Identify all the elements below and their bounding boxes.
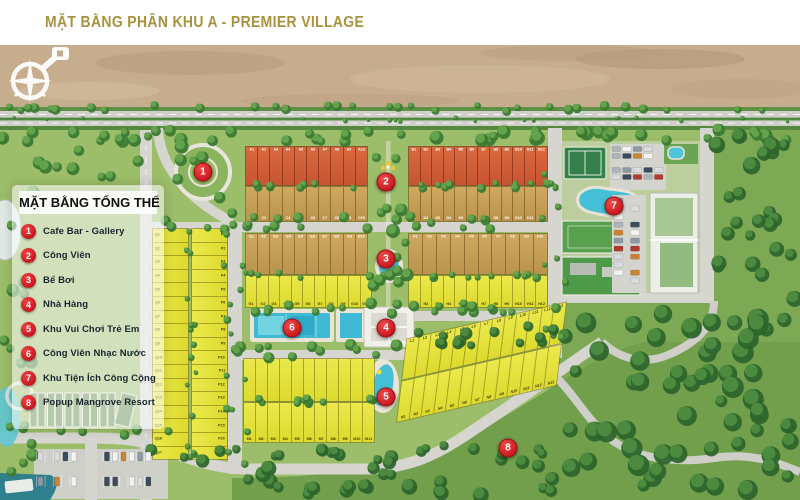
plot-label: B11 [527,148,534,152]
plot-G10[interactable]: G10 [348,276,359,307]
plot-A1[interactable]: A1 [246,147,257,185]
plot-block-K[interactable] [243,358,375,402]
plot-label: N3 [425,409,430,414]
plot-label: G9 [340,302,345,306]
legend-item-number: 3 [21,273,36,288]
plot-label: H11 [527,302,534,306]
plot-lot[interactable] [279,359,291,401]
plot-E6[interactable]: E6 [306,234,318,274]
plot-lot[interactable] [326,359,338,401]
plot-label: M7 [318,437,323,441]
plot-G2[interactable]: G2 [256,276,267,307]
plot-lot[interactable] [291,359,303,401]
plot-label: G6 [306,302,311,306]
plot-label: E2 [262,235,267,239]
legend-item-label: Công Viên [43,250,91,261]
plot-H9[interactable]: H9 [501,276,513,307]
plot-lot[interactable] [303,359,315,401]
plot-E5[interactable]: E5 [294,234,306,274]
plot-G8[interactable]: G8 [325,276,336,307]
plot-D5[interactable]: D5 [454,187,466,221]
plot-label: G4 [283,302,288,306]
plot-label: C4 [286,216,291,220]
plot-B6[interactable]: B6 [466,147,478,185]
plot-label: L7 [484,322,489,327]
plot-label: F9 [525,235,529,239]
plot-F9[interactable]: F9 [519,234,533,274]
plot-label: N12 [535,383,542,388]
plot-A7[interactable]: A7 [318,147,330,185]
plot-label: G2 [260,302,265,306]
legend-item-label: Popup Mangrove Resort [43,397,155,408]
plot-label: E6 [310,235,315,239]
plot-D9[interactable]: D9 [501,187,513,221]
plot-label: L1 [410,339,415,344]
plot-P11[interactable]: P11 [192,364,227,378]
plot-C4[interactable]: C4 [282,187,294,221]
plot-lot[interactable] [314,359,326,401]
plot-label: L11 [532,310,539,315]
plot-D1[interactable]: D1 [409,187,420,221]
plot-label: P16 [218,437,225,441]
title-bar: MẶT BẰNG PHÂN KHU A - PREMIER VILLAGE [0,0,800,45]
plot-label: M2 [259,437,264,441]
plot-C3[interactable]: C3 [269,187,281,221]
plot-H7[interactable]: H7 [477,276,489,307]
plot-P5[interactable]: P5 [192,282,227,296]
plot-P17[interactable]: P17 [192,446,227,460]
plot-H10[interactable]: H10 [512,276,524,307]
plot-label: F8 [511,235,515,239]
plot-H4[interactable]: H4 [443,276,455,307]
legend-item-number: 2 [21,248,36,263]
plot-label: L12 [544,307,551,312]
plot-label: M1 [247,437,252,441]
plot-label: M9 [342,437,347,441]
plot-label: G1 [249,302,254,306]
plot-lot[interactable] [350,359,362,401]
plot-M11[interactable]: M11 [362,403,374,442]
plot-label: M5 [294,437,299,441]
plot-label: N7 [474,398,479,403]
plot-H11[interactable]: H11 [524,276,536,307]
legend-item-1: 1Cafe Bar - Gallery [21,224,157,239]
plot-label: L2 [422,336,427,341]
plot-F8[interactable]: F8 [505,234,519,274]
plot-label: F10 [537,235,543,239]
plot-G1[interactable]: G1 [246,276,256,307]
map-marker-7[interactable]: 7 [605,197,624,216]
plot-label: A2 [261,148,266,152]
plot-A9[interactable]: A9 [343,147,355,185]
plot-M3[interactable]: M3 [267,403,279,442]
plot-lot[interactable] [267,359,279,401]
plot-P14[interactable]: P14 [192,405,227,419]
plot-block-P[interactable]: P1P2P3P4P5P6P7P8P9P10P11P12P13P14P15P16P… [191,228,228,460]
plot-label: H4 [447,302,452,306]
plot-P16[interactable]: P16 [192,432,227,446]
plot-D12[interactable]: D12 [535,187,547,221]
plot-label: D2 [423,216,428,220]
plot-M5[interactable]: M5 [291,403,303,442]
plot-P15[interactable]: P15 [192,418,227,432]
plot-label: N13 [547,381,554,386]
plot-label: H10 [515,302,522,306]
plot-E10[interactable]: E10 [355,234,367,274]
plot-label: B5 [458,148,463,152]
plot-A6[interactable]: A6 [306,147,318,185]
plot-label: D5 [458,216,463,220]
plot-label: L4 [447,330,452,335]
plot-label: C1 [249,216,254,220]
plot-label: L3 [435,333,440,338]
plot-label: P13 [218,397,225,401]
legend-item-number: 1 [21,224,36,239]
plot-C7[interactable]: C7 [318,187,330,221]
plot-F10[interactable]: F10 [533,234,547,274]
legend-item-label: Khu Vui Chơi Trẻ Em [43,324,139,335]
plot-E3[interactable]: E3 [269,234,281,274]
plot-G6[interactable]: G6 [302,276,313,307]
plot-label: P8 [220,329,225,333]
plot-P7[interactable]: P7 [192,310,227,324]
plot-label: N4 [437,406,442,411]
plot-label: B1 [412,148,417,152]
plot-B4[interactable]: B4 [443,147,455,185]
plot-block-H[interactable]: H1H2H3H4H5H6H7H8H9H10H11H12 [408,275,548,308]
plot-C9[interactable]: C9 [343,187,355,221]
legend-item-number: 5 [21,322,36,337]
plot-label: F5 [469,235,473,239]
plot-B5[interactable]: B5 [454,147,466,185]
plot-label: H8 [493,302,498,306]
plot-M7[interactable]: M7 [314,403,326,442]
plot-D10[interactable]: D10 [512,187,524,221]
plot-label: E8 [335,235,340,239]
plot-B12[interactable]: B12 [535,147,547,185]
legend-item-label: Cafe Bar - Gallery [43,226,125,237]
plot-label: N9 [499,392,504,397]
plot-label: B6 [470,148,475,152]
plot-M4[interactable]: M4 [279,403,291,442]
plot-label: E7 [323,235,328,239]
plot-B1[interactable]: B1 [409,147,420,185]
plot-P13[interactable]: P13 [192,391,227,405]
plot-lot[interactable] [255,359,267,401]
plot-label: C8 [335,216,340,220]
plot-label: P4 [220,274,225,278]
plot-label: C5 [298,216,303,220]
plot-label: C7 [322,216,327,220]
plot-label: E5 [298,235,303,239]
plot-label: M3 [271,437,276,441]
plot-label: L13 [557,304,564,309]
plot-G3[interactable]: G3 [268,276,279,307]
plot-Q16[interactable]: Q16 [153,432,188,446]
plot-C2[interactable]: C2 [257,187,269,221]
plot-label: D12 [538,216,545,220]
plot-G9[interactable]: G9 [337,276,348,307]
plot-block-F[interactable]: F1F2F3F4F5F6F7F8F9F10 [408,233,548,275]
plot-label: P1 [220,233,225,237]
map-marker-1[interactable]: 1 [194,163,213,182]
plot-label: H5 [458,302,463,306]
plot-label: Q16 [155,437,162,441]
plot-D3[interactable]: D3 [431,187,443,221]
legend-item-number: 6 [21,346,36,361]
legend-item-label: Nhà Hàng [43,299,88,310]
plot-label: F1 [413,235,417,239]
plot-label: N6 [462,401,467,406]
plot-P8[interactable]: P8 [192,323,227,337]
plot-label: A7 [322,148,327,152]
plot-label: P3 [220,261,225,265]
legend-item-label: Bể Bơi [43,275,75,286]
plot-lot[interactable] [338,359,350,401]
plot-label: P17 [218,451,225,455]
plot-label: L9 [508,316,513,321]
legend-item-6: 6Công Viên Nhạc Nước [21,346,157,361]
plot-label: M8 [330,437,335,441]
plot-label: C9 [347,216,352,220]
plot-C5[interactable]: C5 [294,187,306,221]
plot-label: N8 [487,395,492,400]
plot-label: G7 [317,302,322,306]
legend-item-number: 7 [21,371,36,386]
plot-B10[interactable]: B10 [512,147,524,185]
map-marker-2[interactable]: 2 [377,173,396,192]
plot-label: G8 [329,302,334,306]
legend-item-3: 3Bể Bơi [21,273,157,288]
plot-block-C[interactable]: C1C2C3C4C5C6C7C8C9C10 [245,186,368,222]
plot-label: F7 [497,235,501,239]
plot-label: H12 [538,302,545,306]
plot-P1[interactable]: P1 [192,229,227,242]
plot-label: D3 [435,216,440,220]
masterplan-map: A1A2A3A4A5A6A7A8A9A10 B1B2B3B4B5B6B7B8B9… [0,45,800,500]
plot-label: B4 [447,148,452,152]
plot-D8[interactable]: D8 [489,187,501,221]
plot-block-B[interactable]: B1B2B3B4B5B6B7B8B9B10B11B12 [408,146,548,186]
plot-D11[interactable]: D11 [524,187,536,221]
plot-block-E[interactable]: E1E2E3E4E5E6E7E8E9E10 [245,233,368,275]
plot-P3[interactable]: P3 [192,255,227,269]
plot-F5[interactable]: F5 [464,234,478,274]
plot-label: C3 [274,216,279,220]
legend-items: 1Cafe Bar - Gallery2Công Viên3Bể Bơi4Nhà… [19,224,157,411]
plot-label: M4 [283,437,288,441]
plot-label: E10 [358,235,365,239]
plot-B3[interactable]: B3 [431,147,443,185]
legend-panel: MẶT BẰNG TỔNG THỂ 1Cafe Bar - Gallery2Cô… [12,185,164,429]
plot-B2[interactable]: B2 [420,147,432,185]
plot-lot[interactable] [244,359,255,401]
plot-M6[interactable]: M6 [303,403,315,442]
plot-E4[interactable]: E4 [282,234,294,274]
plot-label: Q17 [155,451,162,455]
plot-C8[interactable]: C8 [330,187,342,221]
plot-label: M10 [353,437,360,441]
plot-P12[interactable]: P12 [192,378,227,392]
plot-label: L5 [459,327,464,332]
plot-A5[interactable]: A5 [294,147,306,185]
plot-H2[interactable]: H2 [420,276,432,307]
plot-label: A4 [286,148,291,152]
plot-M8[interactable]: M8 [326,403,338,442]
plot-label: D4 [447,216,452,220]
plot-label: P14 [218,410,225,414]
plot-label: B9 [505,148,510,152]
plot-label: H7 [481,302,486,306]
plot-label: P11 [219,369,225,373]
plot-label: A3 [274,148,279,152]
page-title: MẶT BẰNG PHÂN KHU A - PREMIER VILLAGE [45,14,364,32]
plot-label: A10 [358,148,365,152]
legend-item-number: 4 [21,297,36,312]
plot-G4[interactable]: G4 [279,276,290,307]
plot-E7[interactable]: E7 [318,234,330,274]
plot-label: C6 [310,216,315,220]
plot-E8[interactable]: E8 [330,234,342,274]
map-marker-5[interactable]: 5 [377,388,396,407]
plot-label: N11 [523,386,530,391]
plot-A10[interactable]: A10 [355,147,367,185]
plot-label: B8 [493,148,498,152]
plot-label: M11 [365,437,372,441]
plot-label: N1 [401,415,406,420]
plot-label: F3 [441,235,445,239]
plot-C10[interactable]: C10 [355,187,367,221]
plot-A8[interactable]: A8 [330,147,342,185]
plot-label: B3 [435,148,440,152]
plot-label: N10 [510,389,517,394]
plot-P2[interactable]: P2 [192,242,227,256]
plot-label: A9 [347,148,352,152]
plot-label: D6 [470,216,475,220]
plot-label: D10 [515,216,522,220]
plot-label: E9 [347,235,352,239]
plot-label: D9 [505,216,510,220]
plot-label: E4 [286,235,291,239]
plot-M2[interactable]: M2 [255,403,267,442]
plot-block-A[interactable]: A1A2A3A4A5A6A7A8A9A10 [245,146,368,186]
plot-P4[interactable]: P4 [192,269,227,283]
plot-M10[interactable]: M10 [350,403,362,442]
plot-A4[interactable]: A4 [282,147,294,185]
plot-label: N5 [450,404,455,409]
plot-P9[interactable]: P9 [192,337,227,351]
plot-block-D[interactable]: D1D2D3D4D5D6D7D8D9D10D11D12 [408,186,548,222]
plot-H6[interactable]: H6 [466,276,478,307]
plot-P6[interactable]: P6 [192,296,227,310]
plot-H5[interactable]: H5 [454,276,466,307]
legend-item-number: 8 [21,395,36,410]
plot-label: A8 [335,148,340,152]
plot-M1[interactable]: M1 [244,403,255,442]
legend-item-7: 7Khu Tiện Ích Công Cộng [21,371,157,386]
plot-label: H6 [470,302,475,306]
plot-label: P15 [218,424,225,428]
plot-F3[interactable]: F3 [436,234,450,274]
plot-C1[interactable]: C1 [246,187,257,221]
plot-B7[interactable]: B7 [477,147,489,185]
plot-Q17[interactable]: Q17 [153,446,188,460]
plot-G5[interactable]: G5 [291,276,302,307]
screenshot-root: MẶT BẰNG PHÂN KHU A - PREMIER VILLAGE [0,0,800,500]
plot-G7[interactable]: G7 [314,276,325,307]
plot-label: C2 [261,216,266,220]
plot-H3[interactable]: H3 [431,276,443,307]
legend-item-label: Khu Tiện Ích Công Cộng [43,373,156,384]
plot-block-M[interactable]: M1M2M3M4M5M6M7M8M9M10M11 [243,402,375,443]
plot-F2[interactable]: F2 [422,234,436,274]
plot-H12[interactable]: H12 [535,276,547,307]
legend-item-5: 5Khu Vui Chơi Trẻ Em [21,322,157,337]
plot-B11[interactable]: B11 [524,147,536,185]
plot-label: H3 [435,302,440,306]
plot-F6[interactable]: F6 [478,234,492,274]
plot-label: F4 [455,235,459,239]
plot-D6[interactable]: D6 [466,187,478,221]
plot-E1[interactable]: E1 [246,234,257,274]
plot-D7[interactable]: D7 [477,187,489,221]
plot-label: D7 [481,216,486,220]
plot-label: L8 [496,319,501,324]
plot-label: B2 [423,148,428,152]
plot-F7[interactable]: F7 [491,234,505,274]
plot-C6[interactable]: C6 [306,187,318,221]
plot-label: G3 [272,302,277,306]
plot-label: P10 [218,356,225,360]
plot-label: H1 [412,302,417,306]
plot-label: G11 [362,302,369,306]
plot-B9[interactable]: B9 [501,147,513,185]
compass-key-icon [0,45,76,107]
map-marker-3[interactable]: 3 [377,250,396,269]
plot-H8[interactable]: H8 [489,276,501,307]
plot-H1[interactable]: H1 [409,276,420,307]
plot-label: L6 [472,324,477,329]
plot-P10[interactable]: P10 [192,350,227,364]
square-pool [340,313,362,338]
plot-B8[interactable]: B8 [489,147,501,185]
map-marker-4[interactable]: 4 [377,319,396,338]
plot-label: B7 [481,148,486,152]
plot-G11[interactable]: G11 [360,276,371,307]
map-marker-6[interactable]: 6 [283,319,302,338]
plot-M9[interactable]: M9 [338,403,350,442]
plot-D4[interactable]: D4 [443,187,455,221]
plot-F4[interactable]: F4 [450,234,464,274]
map-marker-8[interactable]: 8 [499,439,518,458]
plot-D2[interactable]: D2 [420,187,432,221]
legend-item-label: Công Viên Nhạc Nước [43,348,146,359]
plot-label: L10 [520,313,527,318]
plot-A2[interactable]: A2 [257,147,269,185]
plot-block-G[interactable]: G1G2G3G4G5G6G7G8G9G10G11 [245,275,372,308]
plot-label: D1 [412,216,417,220]
plot-label: A1 [249,148,254,152]
plot-E2[interactable]: E2 [257,234,269,274]
plot-label: E3 [274,235,279,239]
plot-lot[interactable] [362,359,374,401]
plot-E9[interactable]: E9 [343,234,355,274]
plot-label: P12 [218,383,225,387]
plot-F1[interactable]: F1 [409,234,422,274]
plot-A3[interactable]: A3 [269,147,281,185]
plot-label: G5 [295,302,300,306]
plot-label: P6 [220,301,225,305]
